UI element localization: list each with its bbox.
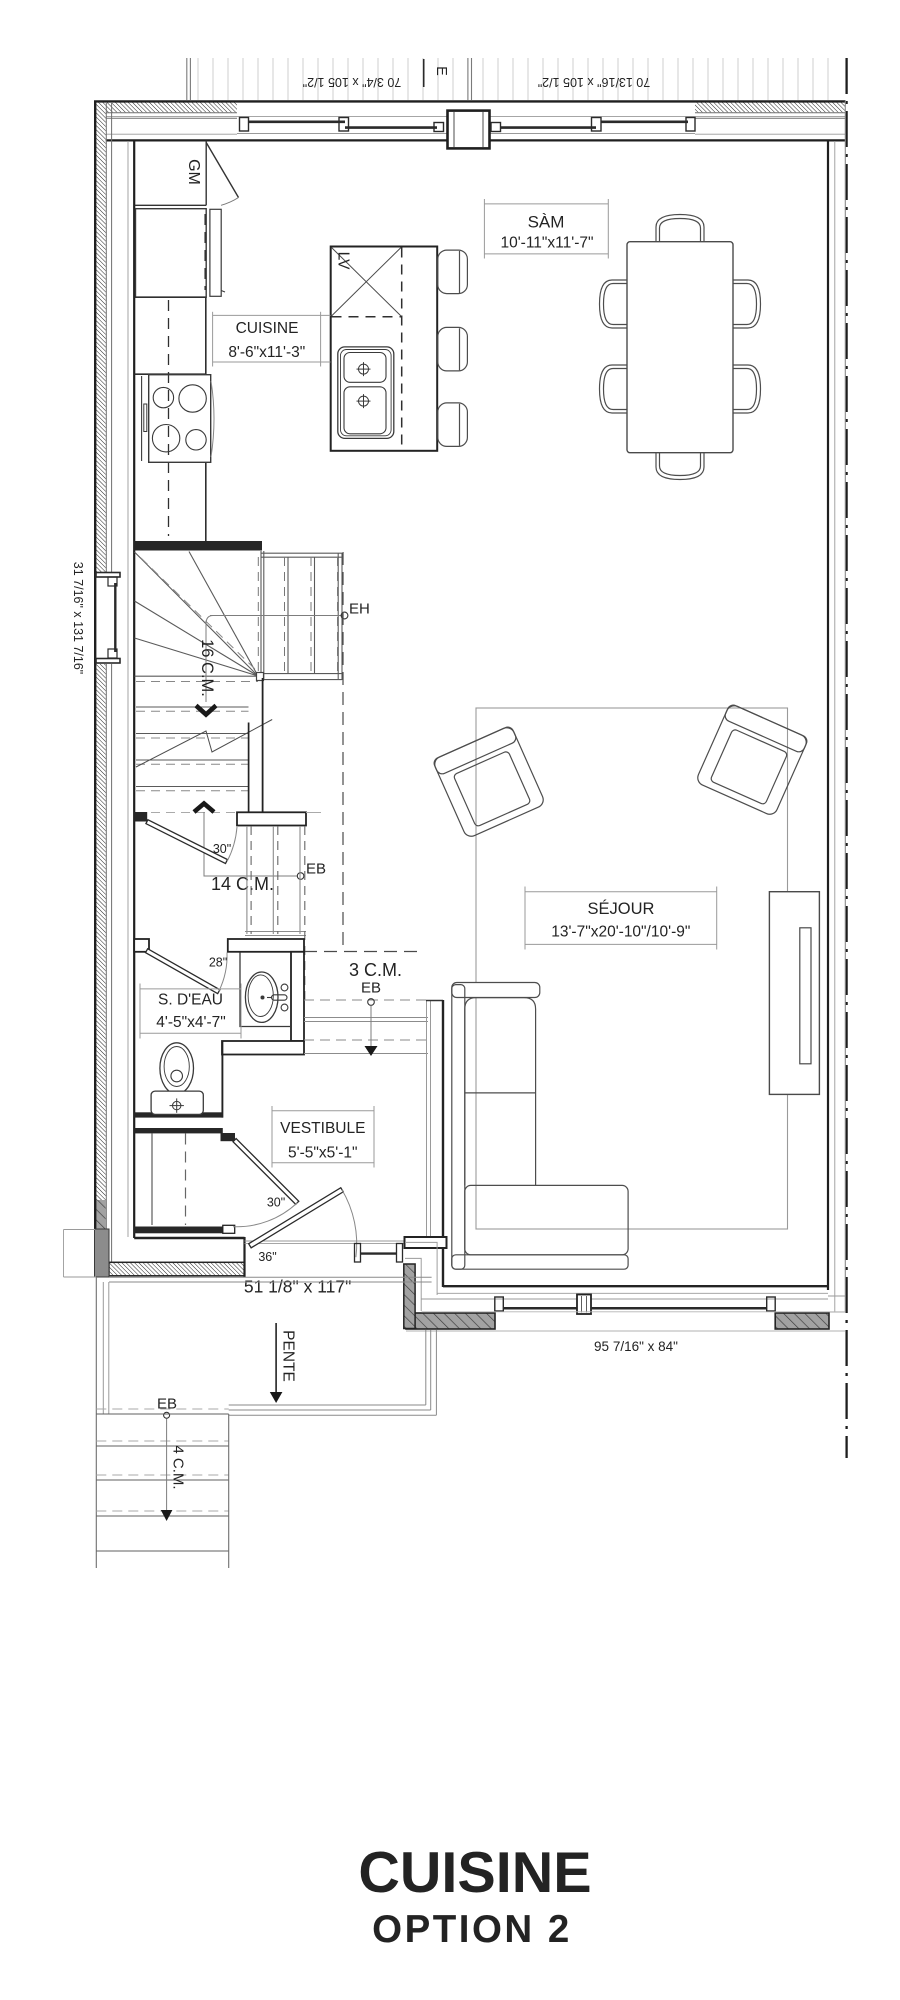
svg-text:CUISINE: CUISINE: [236, 320, 299, 337]
svg-text:5'-5"x5'-1": 5'-5"x5'-1": [288, 1145, 357, 1162]
svg-text:70 13/16" x 105 1/2": 70 13/16" x 105 1/2": [538, 75, 650, 89]
svg-text:10'-11"x11'-7": 10'-11"x11'-7": [500, 235, 593, 252]
svg-text:4 C.M.: 4 C.M.: [170, 1445, 187, 1489]
svg-text:EH: EH: [349, 601, 370, 618]
svg-text:CUISINE: CUISINE: [358, 1841, 591, 1905]
svg-text:28": 28": [209, 956, 227, 970]
svg-text:EB: EB: [361, 980, 381, 997]
svg-text:14 C.M.: 14 C.M.: [211, 874, 274, 894]
svg-text:OPTION 2: OPTION 2: [372, 1908, 572, 1951]
svg-text:3 C.M.: 3 C.M.: [349, 960, 402, 980]
svg-text:S. D'EAU: S. D'EAU: [158, 992, 223, 1009]
svg-text:30": 30": [267, 1196, 285, 1210]
svg-text:GM: GM: [185, 159, 202, 185]
svg-text:E: E: [433, 66, 449, 76]
svg-text:95 7/16" x 84": 95 7/16" x 84": [594, 1339, 678, 1354]
svg-text:31 7/16" x 131 7/16": 31 7/16" x 131 7/16": [71, 562, 85, 674]
svg-text:8'-6"x11'-3": 8'-6"x11'-3": [228, 344, 305, 361]
svg-text:EB: EB: [157, 1396, 177, 1413]
svg-text:51 1/8" x 117": 51 1/8" x 117": [244, 1277, 351, 1297]
svg-text:16 C.M.: 16 C.M.: [198, 639, 216, 697]
svg-text:SÀM: SÀM: [528, 213, 565, 232]
svg-text:70 3/4" x 105 1/2": 70 3/4" x 105 1/2": [303, 75, 402, 89]
svg-text:SÉJOUR: SÉJOUR: [588, 899, 655, 918]
svg-text:PENTE: PENTE: [279, 1330, 296, 1382]
svg-text:36": 36": [258, 1250, 276, 1264]
svg-text:4'-5"x4'-7": 4'-5"x4'-7": [156, 1014, 225, 1031]
svg-text:LV: LV: [334, 252, 351, 270]
svg-text:EB: EB: [306, 861, 326, 878]
svg-text:13'-7"x20'-10"/10'-9": 13'-7"x20'-10"/10'-9": [551, 924, 690, 941]
svg-text:30": 30": [213, 842, 231, 856]
svg-text:VESTIBULE: VESTIBULE: [280, 1120, 365, 1137]
